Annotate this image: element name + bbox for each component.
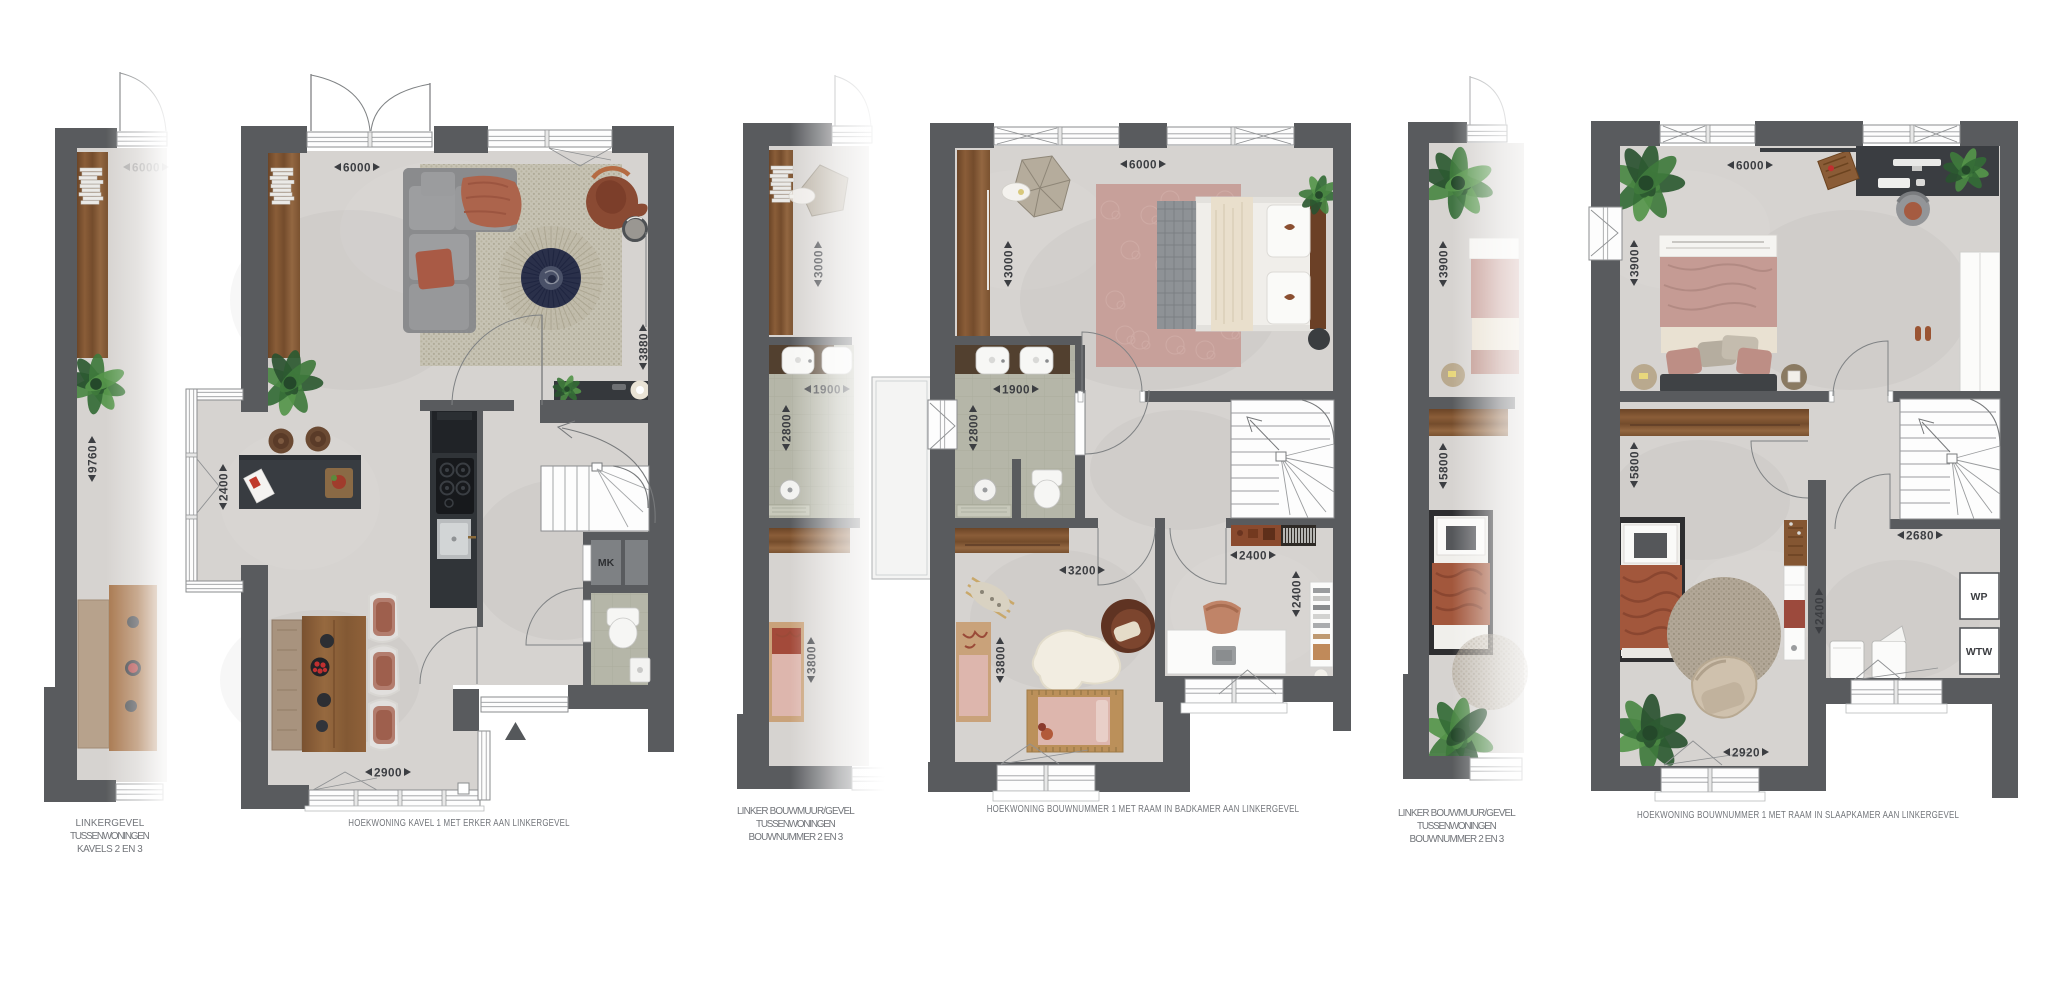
svg-text:TUSSENWONINGEN: TUSSENWONINGEN bbox=[1417, 821, 1497, 832]
svg-text:2680: 2680 bbox=[1906, 529, 1934, 543]
svg-text:3000: 3000 bbox=[1002, 250, 1016, 278]
svg-text:HOEKWONING BOUWNUMMER 1 MET RA: HOEKWONING BOUWNUMMER 1 MET RAAM IN SLAA… bbox=[1637, 809, 1959, 820]
svg-text:1900: 1900 bbox=[1002, 383, 1030, 397]
svg-text:HOEKWONING KAVEL 1 MET ERKER A: HOEKWONING KAVEL 1 MET ERKER AAN LINKERG… bbox=[348, 817, 569, 828]
svg-text:BOUWNUMMER 2 EN 3: BOUWNUMMER 2 EN 3 bbox=[1410, 834, 1505, 845]
svg-text:5800: 5800 bbox=[1628, 451, 1642, 479]
svg-text:TUSSENWONINGEN: TUSSENWONINGEN bbox=[70, 831, 150, 842]
svg-text:KAVELS 2 EN 3: KAVELS 2 EN 3 bbox=[77, 844, 143, 855]
svg-text:6000: 6000 bbox=[1736, 159, 1764, 173]
svg-text:2900: 2900 bbox=[374, 766, 402, 780]
svg-text:3200: 3200 bbox=[1068, 564, 1096, 578]
svg-text:WP: WP bbox=[1971, 591, 1988, 603]
svg-text:2800: 2800 bbox=[967, 414, 981, 442]
svg-text:3900: 3900 bbox=[1437, 250, 1451, 278]
svg-text:BOUWNUMMER 2 EN 3: BOUWNUMMER 2 EN 3 bbox=[749, 832, 844, 843]
svg-text:3880: 3880 bbox=[637, 333, 651, 361]
svg-text:2920: 2920 bbox=[1732, 746, 1760, 760]
svg-text:9760: 9760 bbox=[86, 445, 100, 473]
svg-text:LINKERGEVEL: LINKERGEVEL bbox=[76, 818, 145, 829]
svg-text:2400: 2400 bbox=[1239, 549, 1267, 563]
svg-text:2400: 2400 bbox=[217, 473, 231, 501]
svg-text:6000: 6000 bbox=[343, 161, 371, 175]
svg-text:MK: MK bbox=[598, 557, 615, 569]
svg-text:TUSSENWONINGEN: TUSSENWONINGEN bbox=[756, 819, 836, 830]
svg-text:LINKER BOUWMUUR/GEVEL: LINKER BOUWMUUR/GEVEL bbox=[737, 806, 855, 817]
svg-text:3900: 3900 bbox=[1628, 249, 1642, 277]
svg-text:HOEKWONING BOUWNUMMER 1 MET RA: HOEKWONING BOUWNUMMER 1 MET RAAM IN BADK… bbox=[987, 803, 1299, 814]
svg-text:6000: 6000 bbox=[1129, 158, 1157, 172]
svg-text:3800: 3800 bbox=[994, 646, 1008, 674]
svg-text:2400: 2400 bbox=[1813, 597, 1827, 625]
svg-text:2400: 2400 bbox=[1290, 580, 1304, 608]
svg-text:5800: 5800 bbox=[1437, 452, 1451, 480]
svg-text:LINKER BOUWMUUR/GEVEL: LINKER BOUWMUUR/GEVEL bbox=[1398, 808, 1516, 819]
svg-text:WTW: WTW bbox=[1966, 646, 1992, 658]
